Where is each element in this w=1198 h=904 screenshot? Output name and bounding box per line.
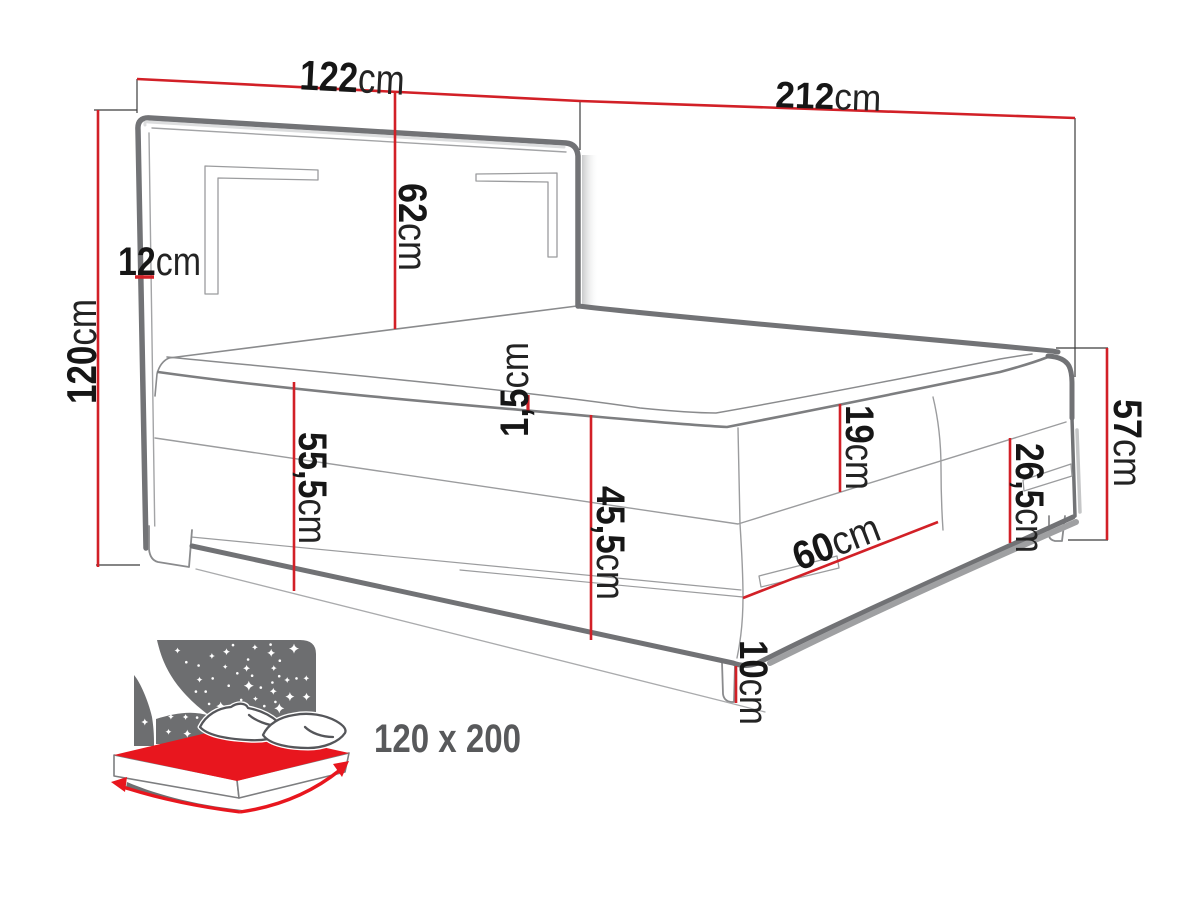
svg-text:1,5cm: 1,5cm bbox=[493, 342, 537, 437]
svg-text:10cm: 10cm bbox=[731, 640, 775, 725]
svg-text:212cm: 212cm bbox=[775, 74, 882, 119]
svg-text:19cm: 19cm bbox=[837, 405, 881, 490]
svg-text:62cm: 62cm bbox=[390, 183, 434, 271]
svg-text:26,5cm: 26,5cm bbox=[1007, 443, 1051, 553]
svg-text:55,5cm: 55,5cm bbox=[290, 432, 334, 544]
svg-text:12cm: 12cm bbox=[118, 240, 201, 284]
svg-text:45,5cm: 45,5cm bbox=[588, 486, 632, 600]
svg-text:120cm: 120cm bbox=[58, 299, 105, 404]
svg-text:57cm: 57cm bbox=[1105, 399, 1149, 487]
svg-text:122cm: 122cm bbox=[299, 51, 406, 103]
svg-text:120 x 200: 120 x 200 bbox=[374, 717, 521, 761]
